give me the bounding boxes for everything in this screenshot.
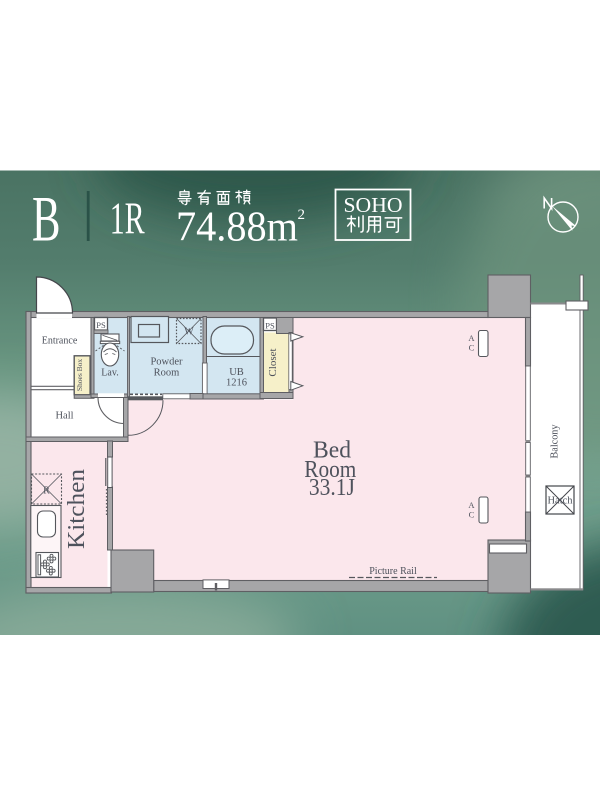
svg-text:1R: 1R: [110, 193, 145, 244]
svg-text:Kitchen: Kitchen: [64, 469, 90, 549]
svg-text:B: B: [32, 184, 61, 256]
svg-text:SOHO: SOHO: [344, 193, 403, 217]
svg-text:A: A: [468, 333, 475, 343]
svg-text:74.88m: 74.88m: [176, 205, 298, 251]
svg-text:Powder: Powder: [150, 357, 183, 368]
svg-text:Shoes Box: Shoes Box: [75, 359, 84, 392]
svg-text:Lav.: Lav.: [101, 368, 118, 379]
svg-text:33.1J: 33.1J: [309, 475, 355, 501]
svg-text:Picture Rail: Picture Rail: [369, 566, 417, 577]
svg-text:UB: UB: [229, 367, 244, 378]
svg-text:Entrance: Entrance: [42, 336, 78, 347]
svg-text:PS: PS: [265, 320, 275, 330]
svg-text:Room: Room: [154, 368, 180, 379]
svg-text:Balcony: Balcony: [549, 424, 561, 458]
svg-text:Hall: Hall: [55, 411, 73, 422]
svg-text:C: C: [469, 510, 475, 520]
svg-text:PS: PS: [96, 320, 106, 330]
svg-text:C: C: [469, 343, 475, 353]
svg-text:1216: 1216: [226, 378, 247, 389]
svg-text:2: 2: [298, 207, 306, 223]
svg-text:A: A: [468, 500, 475, 510]
svg-text:R: R: [43, 486, 50, 497]
svg-text:Hatch: Hatch: [547, 496, 573, 507]
svg-text:W: W: [184, 327, 194, 338]
svg-text:Closet: Closet: [267, 348, 279, 376]
